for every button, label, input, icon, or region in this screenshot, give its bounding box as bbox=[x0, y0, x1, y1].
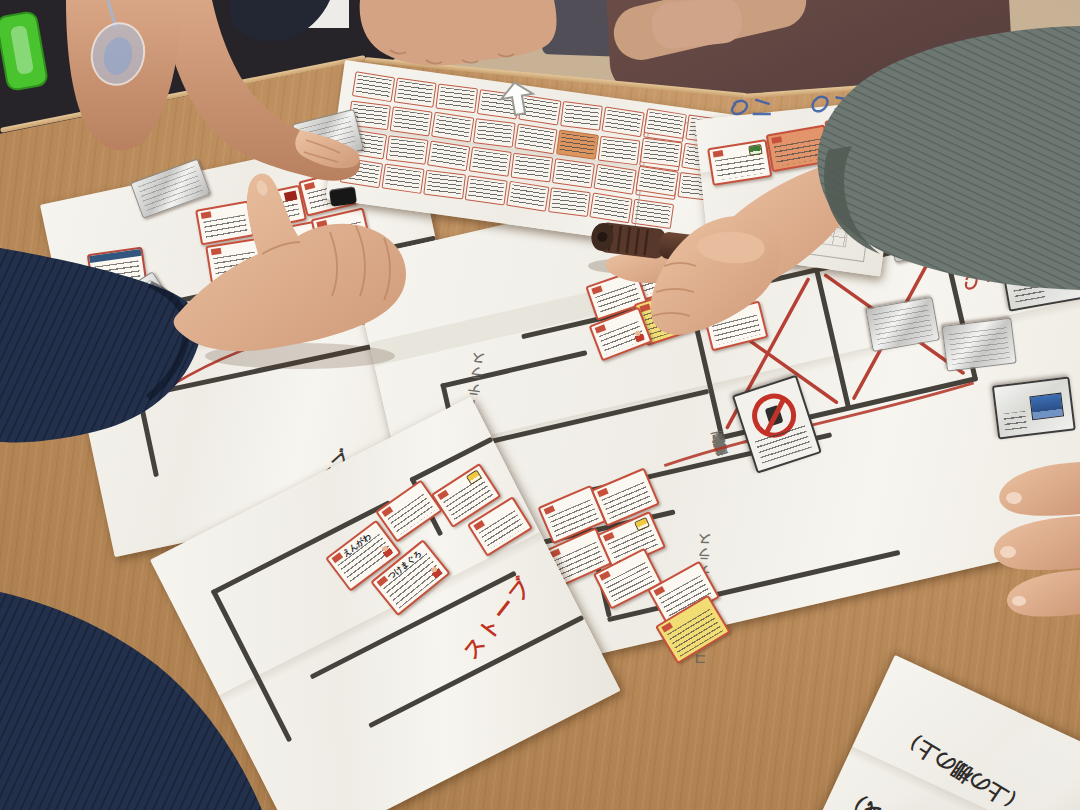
gray-knit-sleeve bbox=[817, 26, 1080, 290]
fingernail bbox=[1012, 596, 1026, 606]
navy-sleeve-corner bbox=[0, 592, 262, 810]
navy-sleeve-left bbox=[0, 248, 201, 442]
fingernail bbox=[1006, 492, 1022, 504]
resting-hand bbox=[360, 0, 557, 65]
fingertips bbox=[994, 462, 1080, 617]
hands-overlay bbox=[0, 0, 1080, 810]
left-hand bbox=[174, 174, 406, 352]
fingernail bbox=[1000, 546, 1016, 558]
dark-sleeve-top bbox=[230, 0, 330, 42]
workshop-photo: ストーブ 職員室・事務室 コンクリートテラス コンクリートテラス bbox=[0, 0, 1080, 810]
